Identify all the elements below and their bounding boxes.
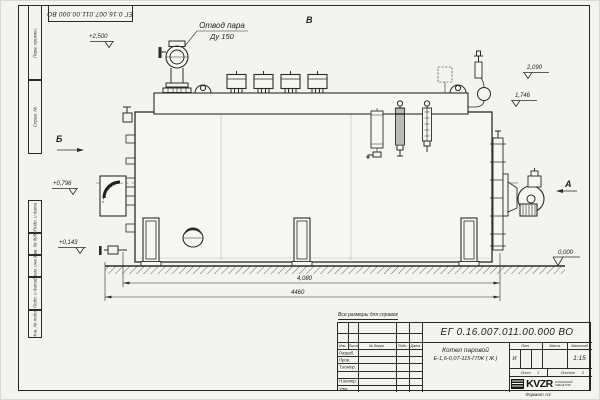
dimension-label-4080: 4,080 xyxy=(297,276,312,282)
view-marker-v: В xyxy=(306,15,313,25)
manufacturer-logo-cell: KVZR КОТЕЛЬНЫЙ ЗАВОД РЭП xyxy=(509,376,592,392)
lit-value-cell: И xyxy=(509,349,520,368)
view-marker-a: А xyxy=(565,179,572,189)
elevation-label-1746: 1,746 xyxy=(515,93,530,99)
margin-column-podp-data-2: Подп. и дата xyxy=(28,277,42,310)
drawing-sheet: Перв. примен. Справ. № Подп. и дата Инв.… xyxy=(0,0,600,400)
elevation-label-0796: +0,796 xyxy=(53,181,72,187)
reference-note: Все размеры для справок xyxy=(338,312,398,320)
row-prov: Пров. xyxy=(338,356,358,363)
col-header-izm: Изм. xyxy=(338,342,348,349)
col-header-lit: Лит. xyxy=(509,342,542,349)
title-designation-cell: ЕГ 0.16.007.011.00.000 ВО xyxy=(422,323,592,342)
dimension-label-4460: 4460 xyxy=(291,290,304,296)
sheet-cell: Лист1 xyxy=(509,368,547,376)
kvzr-logo-icon xyxy=(511,379,524,389)
kvzr-logo-sub2: ЗАВОД РЭП xyxy=(555,385,573,387)
scale-value-cell: 1:15 xyxy=(567,349,592,368)
corner-designation: ЕГ 0.16.007.011.00.000 ВО xyxy=(47,10,133,17)
elevation-label-2500: +2,500 xyxy=(89,34,108,40)
margin-column-vzam-inv: Взам. инв. № xyxy=(28,255,42,277)
steam-outlet-label: Отвод пара Ду 150 xyxy=(193,21,251,41)
margin-column-label: Перв. примен. xyxy=(33,28,38,58)
margin-column-inv-podl: Инв. № подл. xyxy=(28,310,42,338)
title-designation: ЕГ 0.16.007.011.00.000 ВО xyxy=(441,327,574,338)
view-marker-b: Б xyxy=(56,134,62,144)
margin-column-label: Подп. и дата xyxy=(33,202,38,230)
margin-column-sprav-no: Справ. № xyxy=(28,80,42,154)
row-razrab: Разраб. xyxy=(338,349,358,356)
title-block: ЕГ 0.16.007.011.00.000 ВО Изм. Лист № до… xyxy=(337,322,591,391)
row-nkontr: Н.контр. xyxy=(338,378,358,385)
margin-column-podp-data-1: Подп. и дата xyxy=(28,200,42,233)
steam-outlet-label-line2: Ду 150 xyxy=(193,32,251,41)
steam-outlet-label-line1: Отвод пара xyxy=(193,21,251,30)
corner-designation-box: ЕГ 0.16.007.011.00.000 ВО xyxy=(48,5,133,22)
col-header-doc: № докум. xyxy=(358,342,396,349)
margin-column-label: Инв. № подл. xyxy=(33,310,38,338)
margin-column-perv-primen: Перв. примен. xyxy=(28,5,42,80)
col-header-massa: Масса xyxy=(542,342,567,349)
margin-column-label: Справ. № xyxy=(33,107,38,127)
product-name-line2: Е-1,6-0,07-115-ГЛЖ ( Ж ) xyxy=(433,356,497,362)
col-header-scale: Масштаб xyxy=(567,342,592,349)
row-utv: Утв. xyxy=(338,385,358,392)
kvzr-logo-text: KVZR xyxy=(526,378,553,390)
product-name-cell: Котел паровой Е-1,6-0,07-115-ГЛЖ ( Ж ) xyxy=(422,342,509,392)
margin-column-label: Взам. инв. № xyxy=(33,252,38,280)
row-tkontr: Т.контр. xyxy=(338,363,358,370)
format-label: Формат А3 xyxy=(502,392,574,397)
elevation-label-2090: 2,090 xyxy=(527,65,542,71)
col-header-list: Лист xyxy=(348,342,358,349)
col-header-data: Дата xyxy=(409,342,422,349)
col-header-podp: Подп. xyxy=(396,342,409,349)
elevation-label-0000: 0,000 xyxy=(558,250,573,256)
product-name-line1: Котел паровой xyxy=(442,347,489,354)
elevation-label-0143: +0,143 xyxy=(59,240,78,246)
margin-column-label: Подп. и дата xyxy=(33,279,38,307)
sheets-cell: Листов2 xyxy=(547,368,592,376)
